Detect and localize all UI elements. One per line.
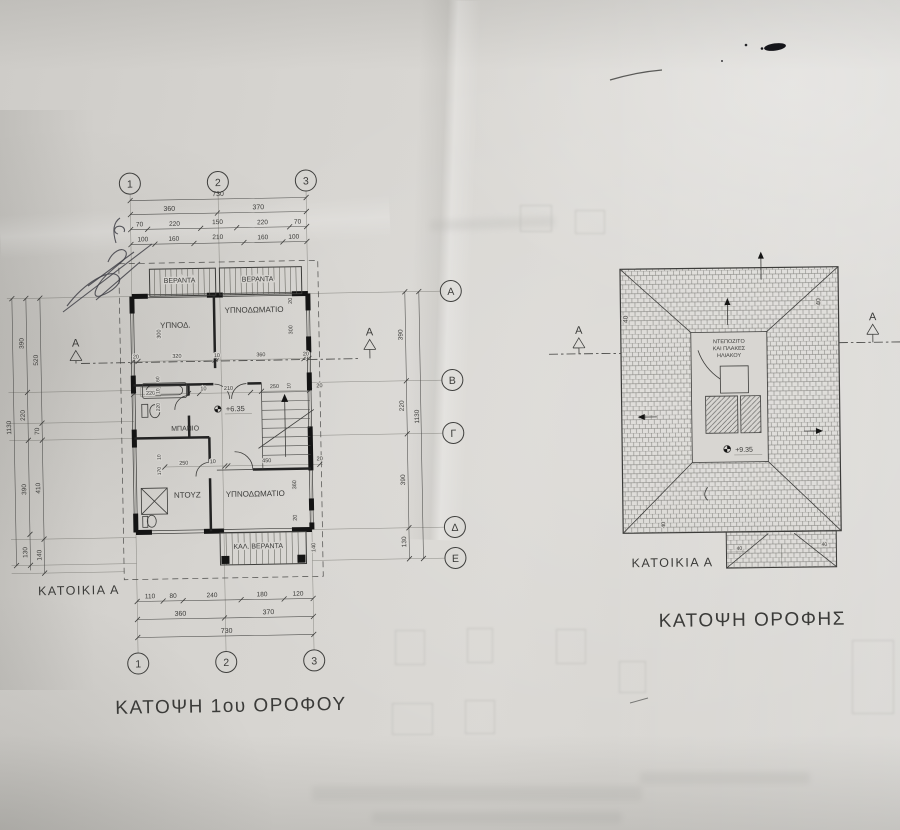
tank-label-line: ΗΛΙΑΚΟΥ [717, 353, 742, 359]
dim-label: 10 [214, 353, 220, 359]
roof-level-value: +9.35 [735, 447, 753, 454]
grid-row-bubble: Γ [450, 428, 456, 440]
room-label-veranda: ΒΕΡΑΝΤΑ [242, 276, 274, 284]
dim-label: 160 [257, 234, 268, 241]
grid-row-bubble: A [447, 286, 454, 298]
grid-col-bubble: 3 [311, 655, 317, 667]
toilet-bowl [147, 515, 156, 527]
dim-label: 220 [257, 219, 268, 226]
stair-direction-arrow [281, 394, 288, 402]
dim-label: 250 [179, 461, 188, 467]
dim-label: 730 [221, 628, 233, 635]
dimension-labels-right: 390 220 390 130 1130 [397, 329, 423, 548]
dim-label: 210 [224, 386, 233, 392]
dim-label: 450 [262, 458, 271, 464]
tank-label-line: ΚΑΙ ΠΛΑΚΕΣ [713, 346, 746, 352]
dim-label: 20 [317, 456, 323, 462]
section-marker-label: A [72, 337, 80, 349]
ink-dot [721, 60, 723, 62]
photographed-drawing-sheet: A A +6.35 1 2 3 1 2 3 [0, 0, 900, 830]
dim-label: 360 [292, 480, 298, 489]
dim-label: 390 [397, 329, 404, 340]
dim-label: 110 [145, 593, 156, 600]
roof-center-label: ΝΤΕΠΟΖΙΤΟ ΚΑΙ ΠΛΑΚΕΣ ΗΛΙΑΚΟΥ [713, 339, 746, 359]
dim-label: 130 [22, 547, 29, 558]
dim-label: 20 [316, 383, 322, 389]
dim-label: 60 [155, 376, 161, 382]
dim-label: 300 [156, 329, 162, 338]
dim-label: 360 [163, 206, 175, 213]
floor-level-value: +6.35 [226, 404, 245, 413]
dimension-labels-left: 1130 390 220 390 130 520 70 410 140 [5, 337, 44, 561]
grid-col-bubble: 2 [215, 177, 221, 189]
dim-label: 180 [257, 591, 268, 598]
dim-label: 220 [156, 403, 162, 412]
toilet-tank [142, 404, 148, 417]
dim-label: 210 [212, 234, 223, 241]
water-tank [720, 366, 748, 393]
dim-label: 160 [168, 236, 179, 243]
dim-label: 10 [286, 383, 292, 389]
dim-label: 320 [172, 354, 181, 360]
section-marker-label: A [575, 325, 583, 337]
interior-dimension-labels: 20 320 10 360 20 220 10 210 60 10 220 25… [132, 297, 326, 555]
dim-label: 410 [35, 482, 42, 493]
room-label-bedroom: ΥΠΝΟΔΩΜΑΤΙΟ [225, 305, 284, 315]
dim-label: 1130 [414, 409, 421, 423]
dim-label: 120 [293, 591, 304, 598]
eave-offset-label: 40 [623, 315, 630, 323]
dim-label: 80 [169, 593, 177, 600]
solar-panels [706, 396, 761, 434]
dim-label: 130 [401, 536, 408, 547]
dim-label: 70 [136, 221, 144, 228]
floor-plan-title: ΚΑΤΟΨΗ 1ου ΟΡΟΦΟΥ [115, 694, 347, 719]
dim-label: 390 [21, 484, 28, 495]
section-line: A A [69, 326, 376, 363]
section-marker-label: A [869, 311, 877, 323]
dim-label: 100 [137, 236, 148, 243]
dim-label: 220 [169, 221, 180, 228]
dim-label: 70 [294, 219, 302, 226]
dim-label: 20 [288, 298, 294, 304]
ink-blob [764, 42, 787, 52]
eave-offset-label: 40 [737, 546, 743, 552]
house-label: ΚΑΤΟΙΚΙΑ Α [632, 555, 714, 570]
room-label-veranda: ΚΑΛ. ΒΕΡΑΝΤΑ [233, 543, 283, 551]
floor-plan-dimension-lines [8, 193, 428, 642]
room-label-bedroom: ΥΠΝΟΔ. [160, 321, 191, 331]
bathroom-fixtures [139, 383, 189, 528]
dim-label: 360 [256, 352, 265, 358]
dim-label: 140 [311, 543, 317, 552]
pen-line [630, 698, 648, 703]
room-label-veranda: ΒΕΡΑΝΤΑ [164, 277, 196, 285]
room-label-bedroom: ΥΠΝΟΔΩΜΑΤΙΟ [226, 489, 285, 499]
level-marker: +6.35 [215, 404, 252, 414]
room-label-bathroom: ΜΠΑΝΙΟ [171, 425, 200, 432]
grid-bubbles-columns-bottom: 1 2 3 [128, 650, 325, 674]
dim-label: 20 [303, 351, 309, 357]
house-label: ΚΑΤΟΙΚΙΑ Α [38, 583, 120, 598]
section-marker-label: A [366, 326, 374, 338]
roof-plan-title: ΚΑΤΟΨΗ ΟΡΟΦΗΣ [659, 609, 846, 632]
dim-label: 10 [200, 386, 206, 392]
dim-label: 1130 [6, 420, 13, 434]
dim-label: 390 [400, 474, 407, 485]
ink-dot [761, 47, 764, 50]
pen-line [610, 70, 662, 80]
veranda-post [221, 556, 229, 564]
veranda-roof: 40 40 [726, 531, 836, 568]
dim-label: 240 [207, 592, 218, 599]
grid-bubbles-rows: A B Γ Δ E [440, 280, 466, 568]
dim-label: 220 [399, 400, 406, 411]
floor-plan: A A +6.35 1 2 3 1 2 3 [2, 167, 469, 720]
dim-label: 220 [20, 410, 27, 421]
grid-row-bubble: E [452, 553, 459, 565]
staircase [258, 391, 315, 457]
roof-plan: ΝΤΕΠΟΖΙΤΟ ΚΑΙ ΠΛΑΚΕΣ ΗΛΙΑΚΟΥ +9.35 40 40 [548, 250, 900, 633]
grid-col-bubble: 1 [135, 658, 141, 670]
dim-label: 360 [174, 611, 186, 618]
grid-col-bubble: 1 [127, 179, 133, 191]
eave-offset-label: 40 [822, 542, 828, 548]
drawing-canvas: A A +6.35 1 2 3 1 2 3 [0, 0, 900, 830]
dim-label: 250 [270, 384, 279, 390]
dim-label: 10 [157, 454, 163, 460]
dim-label: 20 [133, 354, 139, 360]
grid-col-bubble: 2 [223, 657, 229, 669]
dim-label: 150 [212, 219, 223, 226]
dimension-labels-bottom: 110 80 240 180 120 360 370 730 [145, 591, 305, 637]
dim-label: 70 [34, 427, 41, 435]
dim-label: 100 [288, 234, 299, 241]
eave-offset-label: 40 [815, 298, 822, 306]
dim-label: 390 [19, 338, 26, 349]
dim-label: 170 [157, 467, 163, 476]
dim-label: 140 [36, 549, 43, 560]
dim-label: 370 [252, 204, 264, 211]
dim-label: 220 [146, 391, 155, 397]
dim-label: 370 [262, 609, 274, 616]
grid-col-bubble: 3 [303, 175, 309, 187]
dim-label: 20 [293, 515, 299, 521]
pen-scribble [114, 218, 125, 243]
ink-dot [745, 44, 748, 47]
pen-scribble [63, 244, 152, 312]
veranda-post [297, 555, 305, 563]
grid-row-bubble: B [449, 375, 456, 387]
dim-label: 10 [155, 388, 161, 394]
grid-row-bubble: Δ [451, 522, 458, 534]
dim-label: 300 [288, 325, 294, 334]
room-label-shower: ΝΤΟΥΖ [174, 490, 201, 499]
tank-label-line: ΝΤΕΠΟΖΙΤΟ [713, 339, 745, 345]
dim-label: 10 [210, 459, 216, 465]
eave-offset-label: 40 [661, 522, 667, 528]
dim-label: 520 [33, 354, 40, 365]
dim-label: 730 [212, 191, 224, 198]
